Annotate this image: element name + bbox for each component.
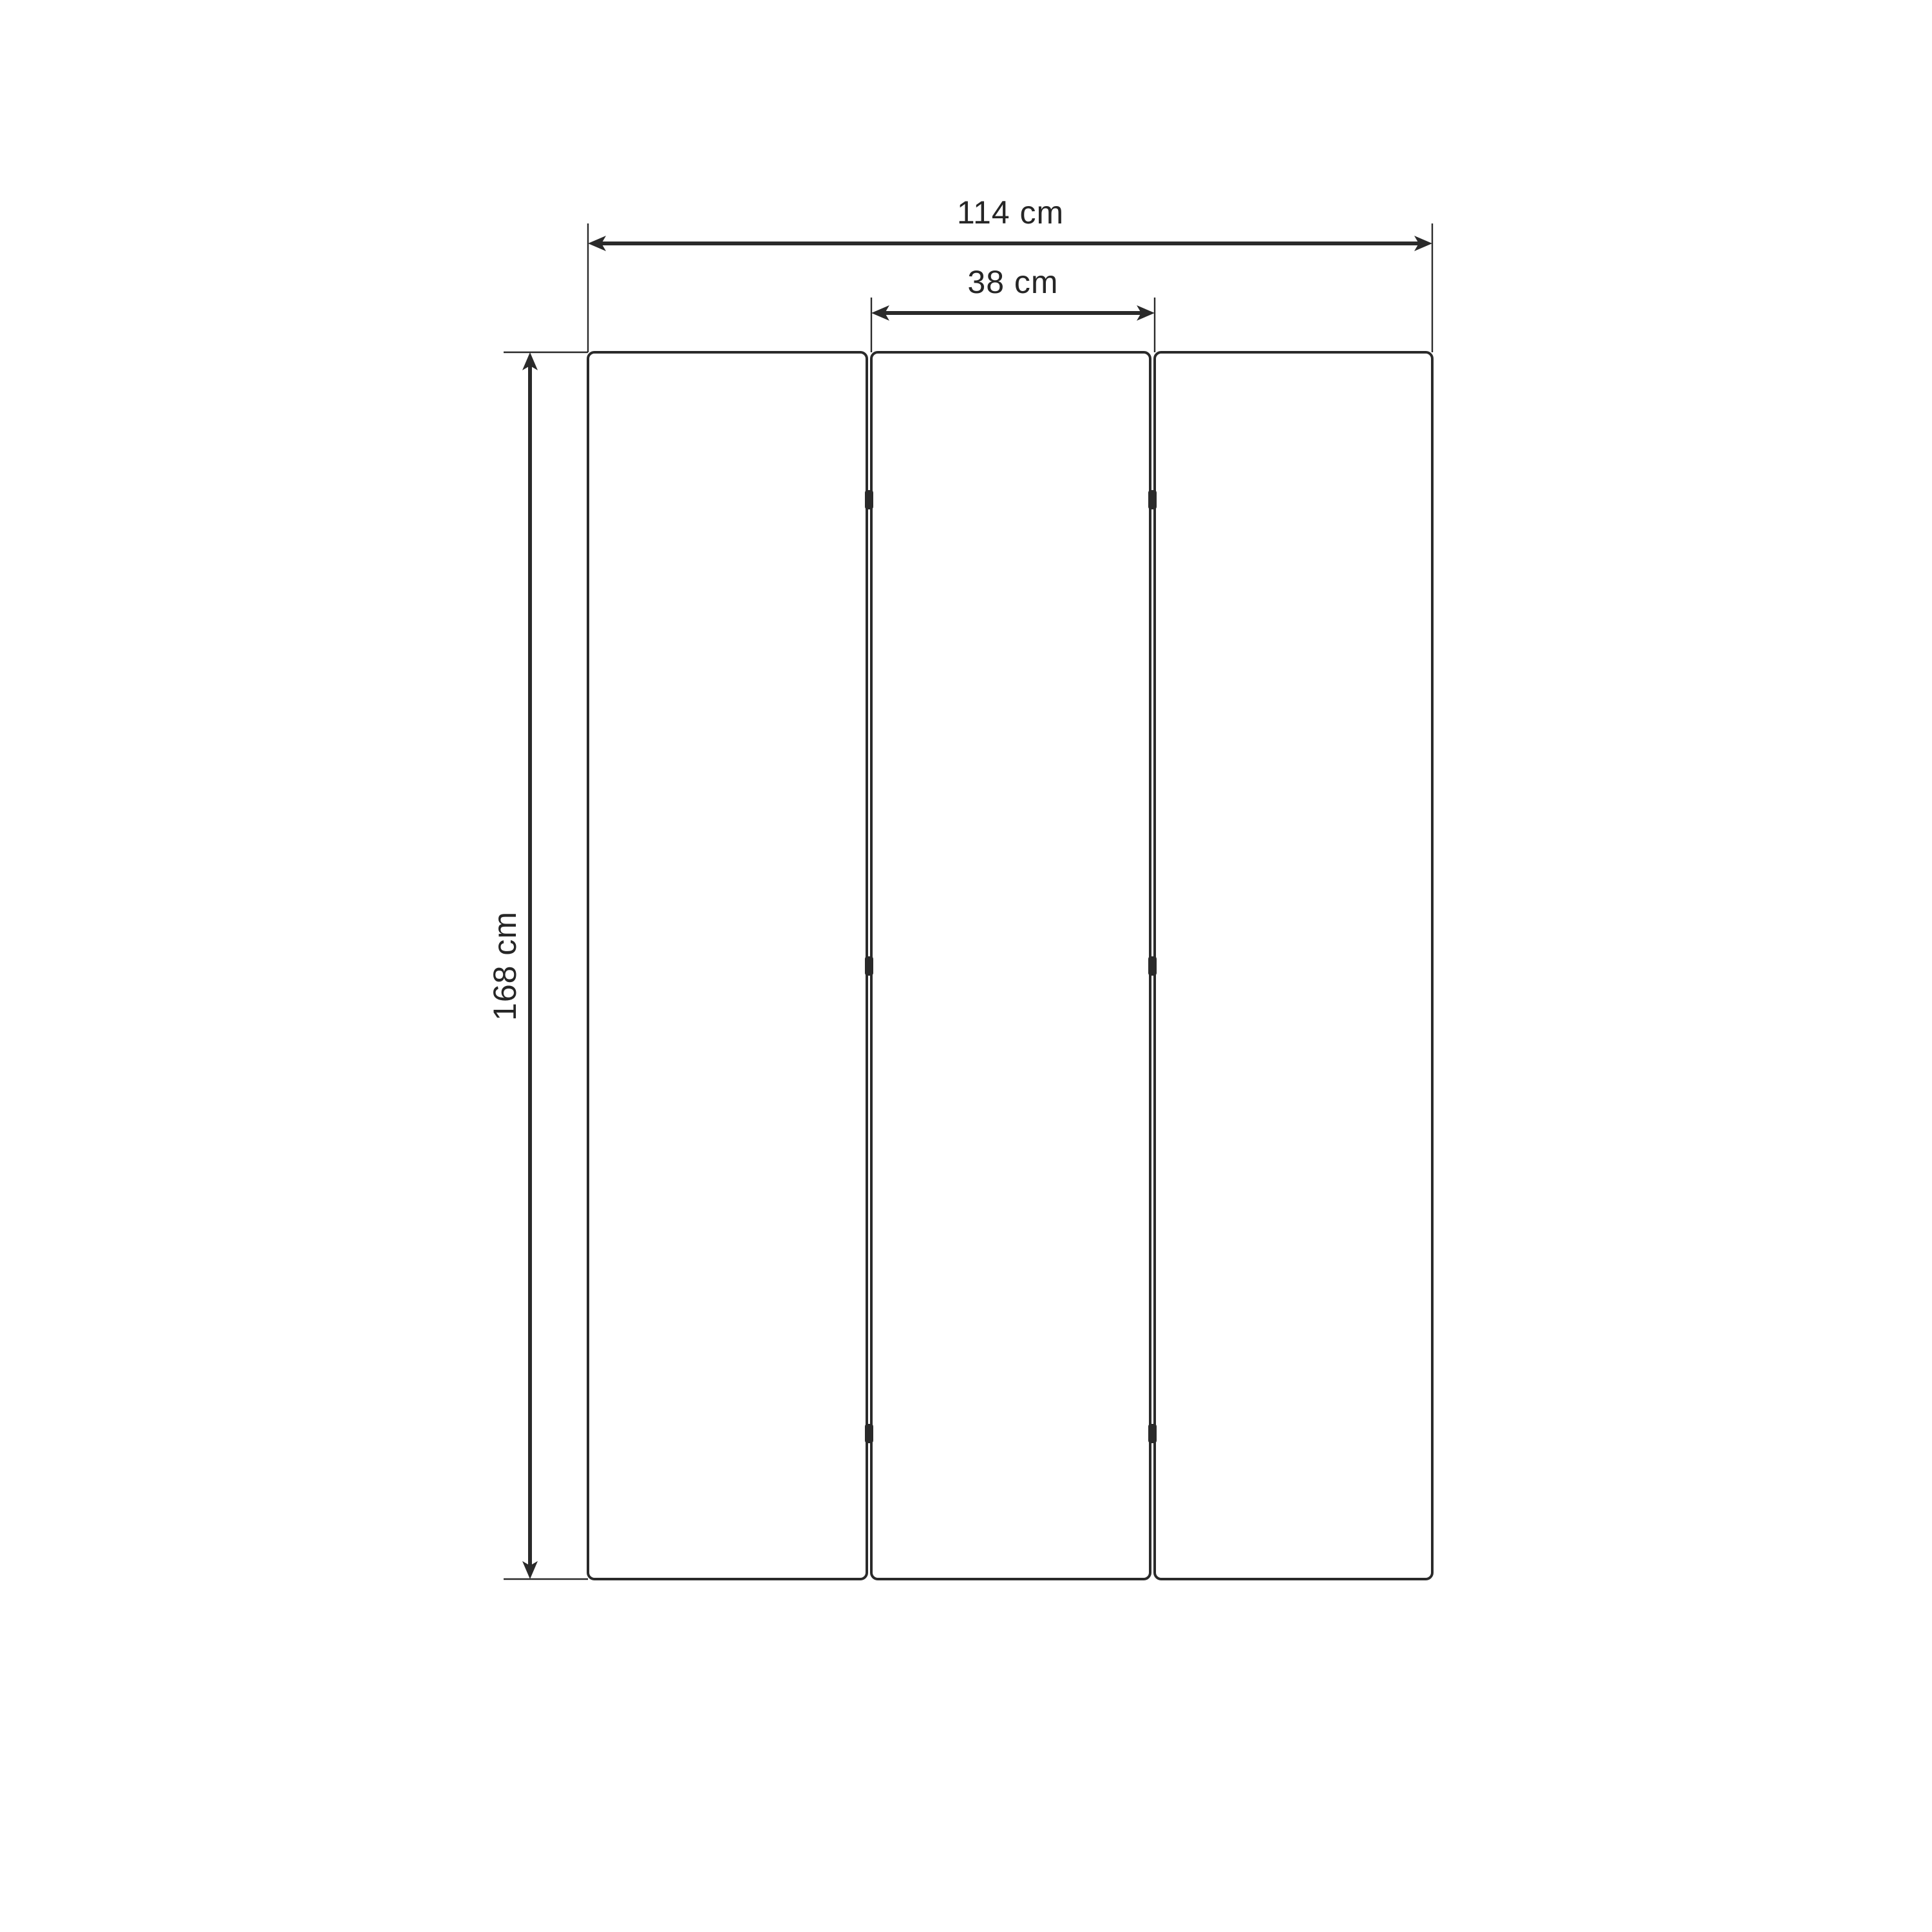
dimension-label-height: 168 cm bbox=[487, 911, 523, 1021]
dimension-label-panel-width: 38 cm bbox=[967, 264, 1058, 300]
panel-right bbox=[1155, 352, 1432, 1579]
hinge-right-bottom bbox=[1148, 1424, 1157, 1443]
hinge-left-bottom bbox=[865, 1424, 873, 1443]
hinge-left-top bbox=[865, 490, 873, 509]
hinge-left-middle bbox=[865, 956, 873, 976]
hinge-right-middle bbox=[1148, 956, 1157, 976]
dimension-label-total-width: 114 cm bbox=[957, 194, 1064, 231]
hinge-right-top bbox=[1148, 490, 1157, 509]
panel-left bbox=[588, 352, 867, 1579]
panels bbox=[588, 352, 1432, 1579]
panel-middle bbox=[871, 352, 1150, 1579]
technical-drawing-folding-screen: 114 cm 38 cm 168 cm bbox=[0, 0, 1932, 1932]
